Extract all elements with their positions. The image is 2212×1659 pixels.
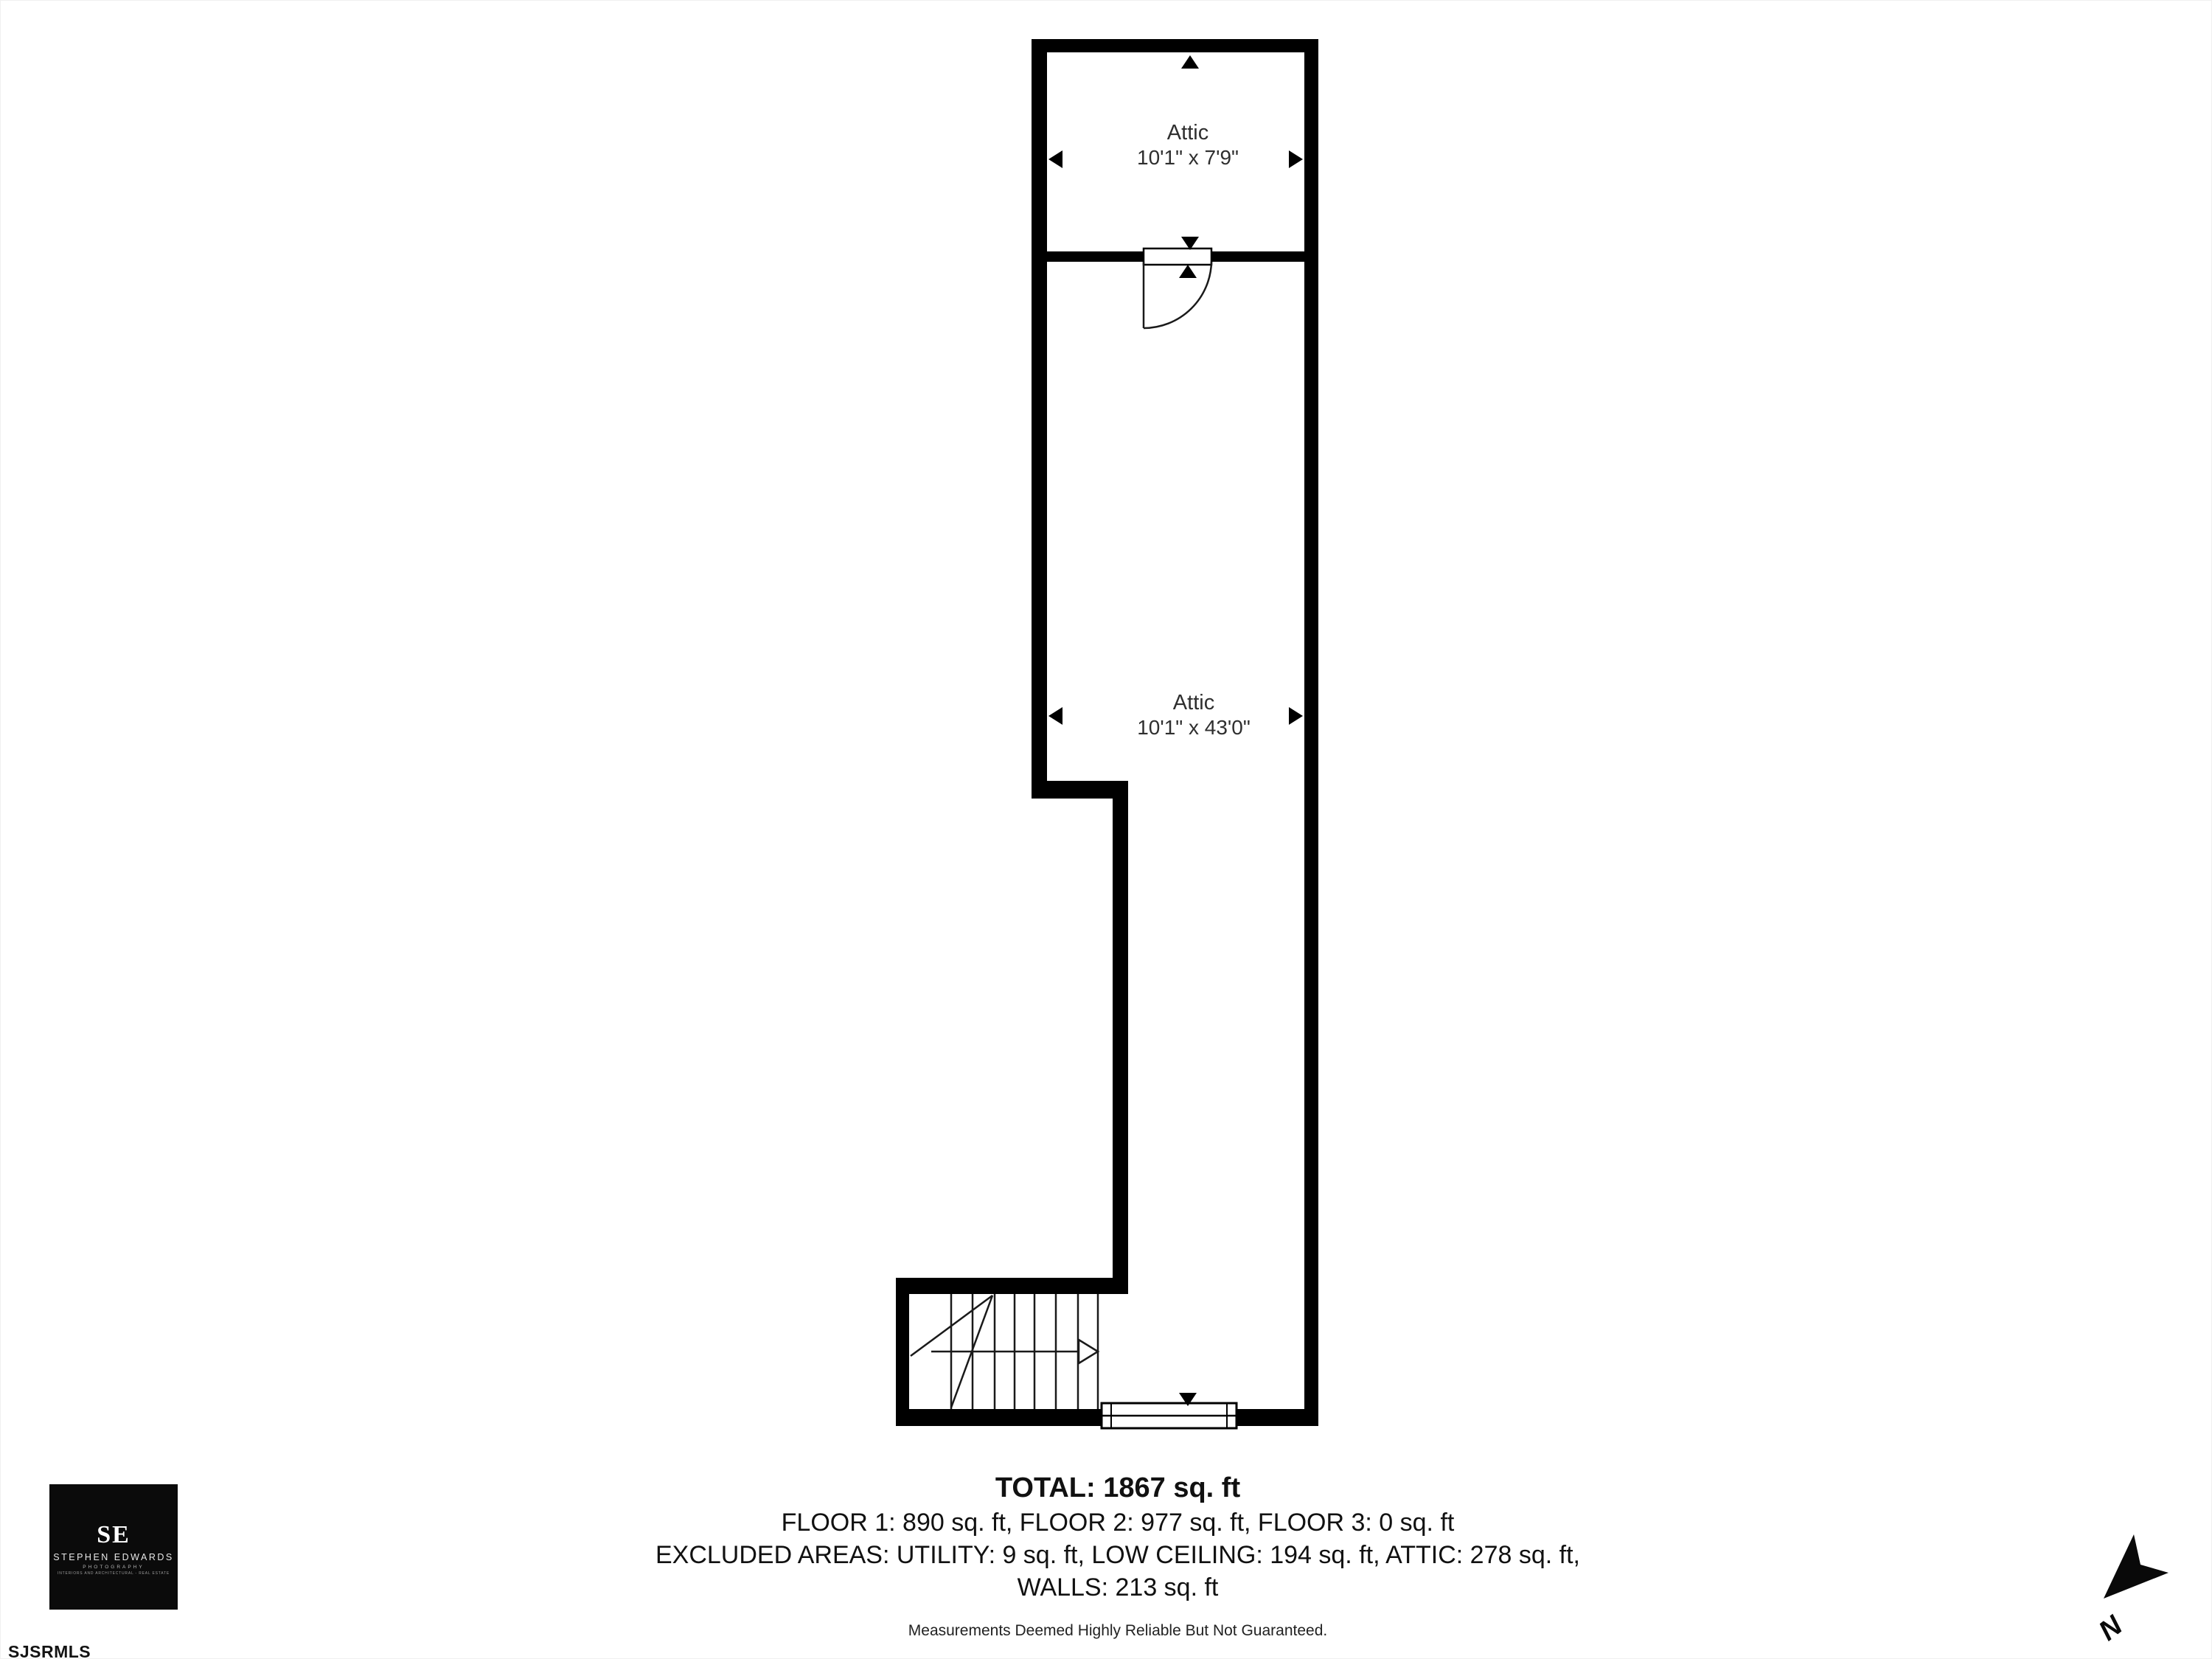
wall-bottom-left-segment [896,1409,1102,1426]
room-name: Attic [1033,120,1343,145]
photographer-logo: SE STEPHEN EDWARDS PHOTOGRAPHY INTERIORS… [49,1484,178,1610]
wall-left-lower [1113,781,1128,1294]
mls-watermark: SJSRMLS [8,1642,91,1659]
marker-up-main-room [1179,265,1197,278]
door-icon [1144,248,1211,328]
marker-up-top-room [1181,55,1199,69]
floor-areas-text: FLOOR 1: 890 sq. ft, FLOOR 2: 977 sq. ft… [380,1509,1855,1537]
north-arrow-icon: N [2093,1534,2168,1647]
floor-plan: N [1,1,2212,1659]
logo-tagline: INTERIORS AND ARCHITECTURAL - REAL ESTAT… [49,1571,178,1576]
window-icon [1102,1403,1237,1428]
wall-divider-right-segment [1211,251,1304,262]
wall-top [1032,39,1318,52]
walls-area-text: WALLS: 213 sq. ft [380,1573,1855,1602]
logo-monogram: SE [49,1523,178,1548]
north-label: N [2093,1610,2129,1647]
room-label-attic-main: Attic 10'1" x 43'0" [1039,690,1349,740]
staircase-icon [911,1294,1098,1409]
excluded-areas-text: EXCLUDED AREAS: UTILITY: 9 sq. ft, LOW C… [380,1541,1855,1570]
disclaimer-text: Measurements Deemed Highly Reliable But … [380,1622,1855,1640]
room-name: Attic [1039,690,1349,715]
room-dimensions: 10'1" x 7'9" [1033,145,1343,170]
logo-name: STEPHEN EDWARDS [49,1552,178,1562]
room-label-attic-small: Attic 10'1" x 7'9" [1033,120,1343,170]
wall-stair-left [896,1278,909,1426]
wall-divider-left-segment [1047,251,1144,262]
total-area-text: TOTAL: 1867 sq. ft [380,1472,1855,1504]
floor-plan-page: N Attic 10'1" x 7'9" Attic 10'1" x 43'0"… [0,0,2212,1659]
stair-arrow-head [1079,1340,1098,1363]
room-dimensions: 10'1" x 43'0" [1039,715,1349,740]
wall-stair-top [896,1278,1128,1294]
logo-subtitle: PHOTOGRAPHY [49,1565,178,1570]
